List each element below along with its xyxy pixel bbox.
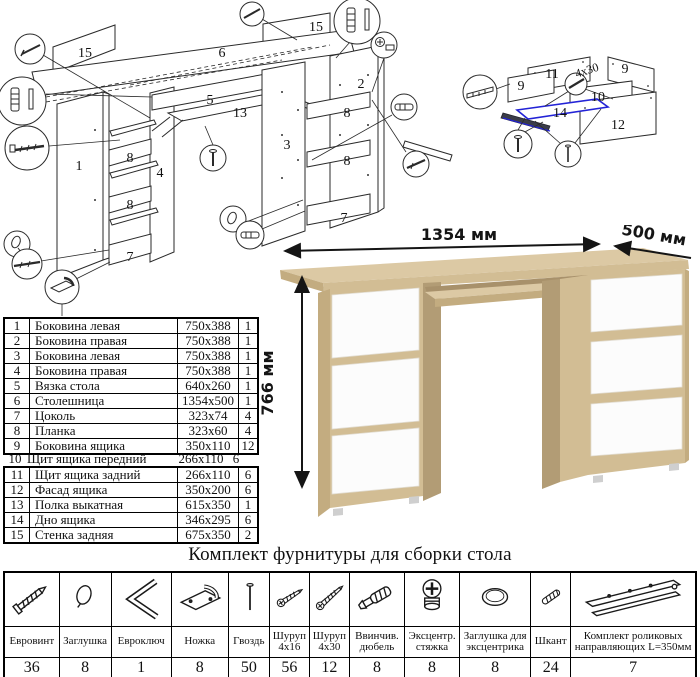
part-size: 675x350 — [178, 528, 239, 544]
part-number-label: 8 — [344, 154, 351, 169]
hardware-name: Ввинчив. дюбель — [349, 627, 404, 658]
table-row: 15Стенка задняя675x3502 — [4, 528, 258, 544]
part-num: 15 — [4, 528, 30, 544]
part-number-label: 8 — [344, 106, 351, 121]
hardware-qty: 24 — [531, 658, 571, 677]
part-name: Боковина левая — [30, 349, 178, 364]
hardware-qty: 8 — [349, 658, 404, 677]
hardware-kit-table: Евровинт Заглушка Евроключ Ножка Гвоздь … — [3, 571, 697, 677]
hardware-qty: 8 — [59, 658, 111, 677]
hardware-qty: 56 — [269, 658, 309, 677]
hardware-qtys-row: 36 8 1 8 50 56 12 8 8 8 24 7 — [4, 658, 696, 677]
hardware-name: Гвоздь — [228, 627, 269, 658]
part-num: 4 — [4, 364, 30, 379]
hardware-name: Заглушка — [59, 627, 111, 658]
part-num: 3 — [4, 349, 30, 364]
table-row: 14Дно ящика346x2956 — [4, 513, 258, 528]
hex-key-icon — [117, 573, 165, 621]
nail-icon — [230, 573, 270, 621]
part-size: 640x260 — [178, 379, 239, 394]
part-name: Дно ящика — [30, 513, 178, 528]
desk-render: 1354 мм 500 мм 766 мм — [255, 225, 700, 545]
part-size: 615x350 — [178, 498, 239, 513]
part-number-label: 10 — [591, 90, 605, 105]
part-num: 14 — [4, 513, 30, 528]
hardware-name: Евровинт — [4, 627, 59, 658]
parts-table-upper: 1Боковина левая750x3881 2Боковина правая… — [3, 317, 259, 455]
part-size: 323x60 — [178, 424, 239, 439]
hardware-qty: 8 — [460, 658, 531, 677]
part-number-label: 15 — [78, 46, 92, 61]
hardware-kit-title: Комплект фурнитуры для сборки стола — [0, 544, 700, 566]
drawer-assembly-diagram: 11 9 9 10 14 12 4x30 — [455, 40, 700, 210]
hardware-name: Шуруп 4x16 — [269, 627, 309, 658]
parts-table-row-10: 10 Щит ящика передний 266x110 6 — [3, 452, 243, 466]
part-number-label: 12 — [611, 118, 625, 133]
part-num: 6 — [4, 394, 30, 409]
part-num: 11 — [4, 467, 30, 483]
part-size: 266x110 — [173, 452, 229, 466]
height-dimension-label: 766 мм — [258, 350, 277, 415]
part-size: 750x388 — [178, 318, 239, 334]
part-size: 266x110 — [178, 467, 239, 483]
part-size: 750x388 — [178, 364, 239, 379]
table-row: 1Боковина левая750x3881 — [4, 318, 258, 334]
hardware-qty: 50 — [228, 658, 269, 677]
hardware-name: Шкант — [531, 627, 571, 658]
hardware-qty: 1 — [111, 658, 171, 677]
part-number-label: 13 — [233, 106, 247, 121]
part-num: 12 — [4, 483, 30, 498]
hardware-name: Шуруп 4x30 — [309, 627, 349, 658]
hardware-qty: 8 — [171, 658, 228, 677]
part-num: 2 — [4, 334, 30, 349]
part-name: Цоколь — [30, 409, 178, 424]
part-size: 1354x500 — [178, 394, 239, 409]
part-num: 5 — [4, 379, 30, 394]
desk-body — [280, 248, 689, 517]
table-row: 13Полка выкатная615x3501 — [4, 498, 258, 513]
part-name: Щит ящика задний — [30, 467, 178, 483]
part-name: Вязка стола — [30, 379, 178, 394]
table-row: 2Боковина правая750x3881 — [4, 334, 258, 349]
part-number-label: 11 — [545, 67, 558, 82]
cam-cap-icon — [471, 573, 519, 621]
part-num: 10 — [3, 452, 27, 466]
part-num: 8 — [4, 424, 30, 439]
left-pedestal-parts — [57, 87, 174, 278]
assembly-instruction-sheet: 15 6 15 5 13 1 4 8 8 7 2 3 8 8 7 — [0, 0, 700, 677]
part-number-label: 4 — [157, 166, 164, 181]
part-size: 346x295 — [178, 513, 239, 528]
part-number-label: 6 — [219, 46, 226, 61]
screw-short-icon — [271, 573, 309, 621]
part-name: Боковина левая — [30, 318, 178, 334]
part-name: Столешница — [30, 394, 178, 409]
hardware-names-row: Евровинт Заглушка Евроключ Ножка Гвоздь … — [4, 627, 696, 658]
drawer-slides-icon — [578, 573, 688, 621]
part-number-label: 2 — [358, 77, 365, 92]
cam-lock-icon — [408, 573, 456, 621]
part-size: 350x200 — [178, 483, 239, 498]
part-num: 1 — [4, 318, 30, 334]
hardware-name: Эксцентр. стяжка — [405, 627, 460, 658]
table-row: 12Фасад ящика350x2006 — [4, 483, 258, 498]
hardware-name: Евроключ — [111, 627, 171, 658]
part-name: Полка выкатная — [30, 498, 178, 513]
part-number-label: 8 — [127, 198, 134, 213]
hardware-name: Ножка — [171, 627, 228, 658]
part-number-label: 9 — [622, 62, 629, 77]
hardware-qty: 8 — [405, 658, 460, 677]
furniture-foot-icon — [176, 573, 224, 621]
part-number-label: 9 — [518, 79, 525, 94]
hardware-qty: 12 — [309, 658, 349, 677]
hardware-qty: 7 — [571, 658, 696, 677]
table-row: 4Боковина правая750x3881 — [4, 364, 258, 379]
part-number-label: 5 — [207, 93, 214, 108]
hardware-name: Комплект роликовых направляющих L=350мм — [571, 627, 696, 658]
dowel-icon — [395, 104, 413, 110]
hardware-icons-row — [4, 572, 696, 627]
part-number-label: 8 — [127, 151, 134, 166]
part-name: Боковина правая — [30, 334, 178, 349]
right-pedestal-parts — [262, 46, 452, 246]
hardware-qty: 36 — [4, 658, 59, 677]
table-row: 3Боковина левая750x3881 — [4, 349, 258, 364]
part-name: Щит ящика передний — [27, 452, 173, 466]
part-number-label: 7 — [341, 211, 348, 226]
table-row: 11Щит ящика задний266x1106 — [4, 467, 258, 483]
part-number-label: 14 — [553, 106, 567, 121]
part-size: 750x388 — [178, 334, 239, 349]
part-number-label: 1 — [76, 159, 83, 174]
wood-dowel-icon — [532, 573, 570, 621]
parts-table-lower: 11Щит ящика задний266x1106 12Фасад ящика… — [3, 466, 259, 544]
screw-cap-icon — [61, 573, 109, 621]
part-size: 323x74 — [178, 409, 239, 424]
part-name: Фасад ящика — [30, 483, 178, 498]
table-row: 6Столешница1354x5001 — [4, 394, 258, 409]
screw-long-icon — [311, 573, 349, 621]
part-number-label: 7 — [127, 250, 134, 265]
part-number-label: 3 — [284, 138, 291, 153]
confirmat-screw-icon — [8, 573, 56, 621]
width-dimension-label: 1354 мм — [421, 225, 497, 244]
table-row: 7Цоколь323x744 — [4, 409, 258, 424]
hardware-name: Заглушка для эксцентрика — [460, 627, 531, 658]
dowel-screw-icon — [353, 573, 401, 621]
part-qty: 6 — [229, 452, 243, 466]
table-row: 8Планка323x604 — [4, 424, 258, 439]
part-name: Планка — [30, 424, 178, 439]
part-number-label: 15 — [309, 20, 323, 35]
table-row: 5Вязка стола640x2601 — [4, 379, 258, 394]
part-name: Боковина правая — [30, 364, 178, 379]
part-num: 7 — [4, 409, 30, 424]
depth-dimension-label: 500 мм — [620, 225, 687, 250]
part-name: Стенка задняя — [30, 528, 178, 544]
part-num: 13 — [4, 498, 30, 513]
part-size: 750x388 — [178, 349, 239, 364]
